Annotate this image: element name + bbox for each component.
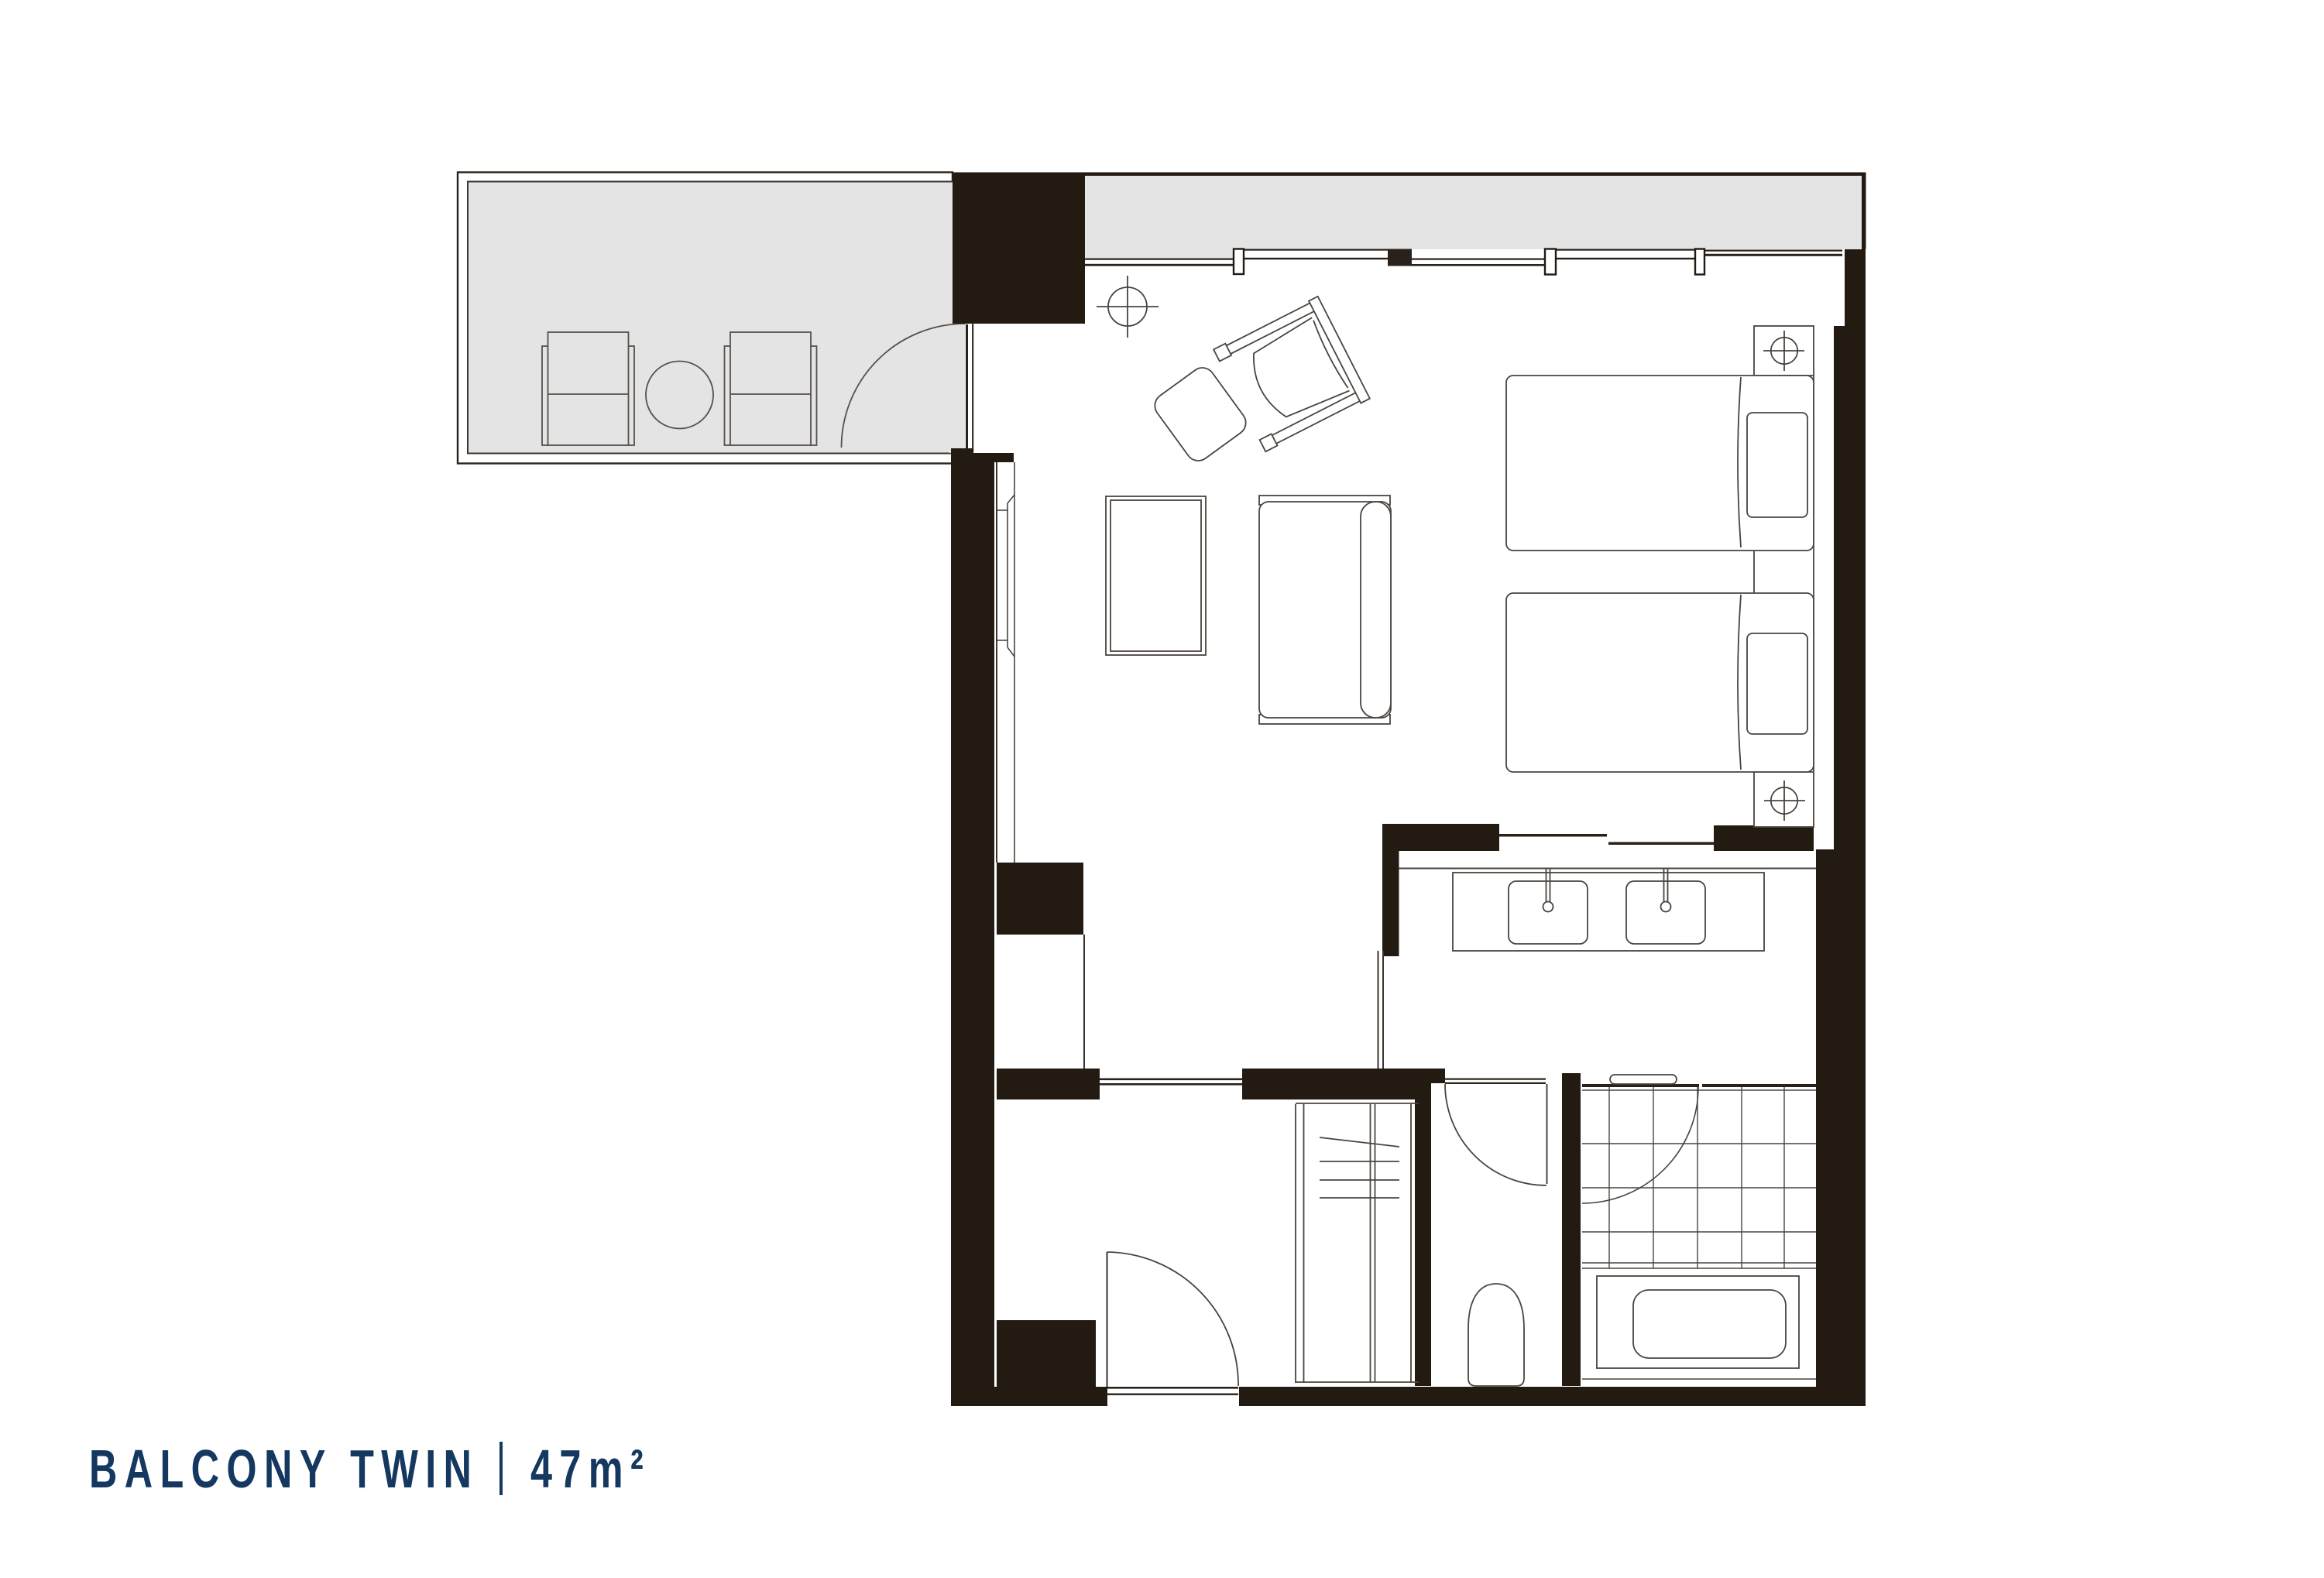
svg-text:BALCONY TWIN: BALCONY TWIN bbox=[89, 1439, 479, 1499]
svg-text:47m²: 47m² bbox=[530, 1439, 651, 1499]
